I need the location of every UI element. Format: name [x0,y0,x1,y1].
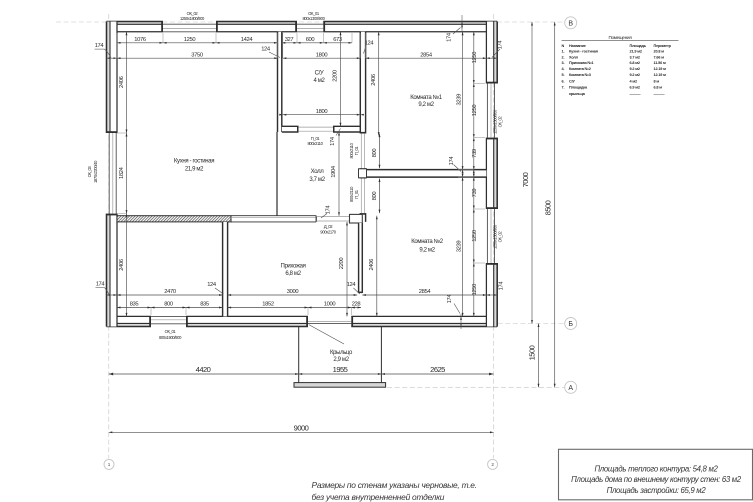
svg-text:4 м2: 4 м2 [630,79,638,83]
svg-text:739: 739 [472,189,478,198]
svg-text:1.: 1. [562,50,565,54]
svg-text:Площадь теплого контура: 54,8: Площадь теплого контура: 54,8 м2 [594,464,718,473]
svg-text:174: 174 [96,282,106,288]
svg-text:1250х1300/900: 1250х1300/900 [493,109,498,134]
svg-text:2406: 2406 [371,74,377,86]
svg-text:3239: 3239 [456,94,462,106]
svg-text:1250х1300/900: 1250х1300/900 [493,224,498,249]
svg-text:Периметр: Периметр [654,44,672,48]
svg-text:1000: 1000 [324,302,336,308]
svg-text:2470: 2470 [164,289,176,295]
svg-text:12.19 м: 12.19 м [654,73,667,77]
svg-text:1250: 1250 [472,284,478,296]
svg-text:1424: 1424 [241,37,254,43]
svg-text:9,2 м2: 9,2 м2 [419,247,435,253]
svg-text:174: 174 [499,281,505,291]
svg-text:1076: 1076 [134,37,146,43]
svg-text:228: 228 [352,302,361,308]
svg-text:2,9 м2: 2,9 м2 [333,357,349,363]
svg-text:3000: 3000 [287,289,299,295]
svg-text:1250х1800/900: 1250х1800/900 [180,16,205,21]
svg-text:С/У: С/У [569,79,575,83]
svg-text:Площадь: Площадь [630,44,647,48]
svg-text:1904: 1904 [331,165,337,178]
svg-text:1800: 1800 [316,109,328,115]
svg-text:6.9 м2: 6.9 м2 [630,86,640,90]
svg-text:2625: 2625 [430,365,445,374]
svg-text:7.66 м: 7.66 м [654,55,665,59]
svg-text:1: 1 [108,462,111,467]
svg-text:3.: 3. [562,61,565,65]
svg-text:2406: 2406 [119,259,125,271]
svg-text:9000: 9000 [294,424,309,433]
svg-text:11.56 м: 11.56 м [654,61,666,65]
svg-text:9,2 м2: 9,2 м2 [418,102,434,108]
svg-text:Площадь дома по внешнему конту: Площадь дома по внешнему контуру стен: 6… [571,475,742,484]
svg-text:2200: 2200 [339,258,345,270]
svg-text:20.8 м: 20.8 м [654,50,665,54]
svg-text:Площадь застройки: 65,9 м2: Площадь застройки: 65,9 м2 [607,486,707,495]
svg-text:ОК_02: ОК_02 [498,231,503,243]
svg-text:1852: 1852 [262,302,274,308]
svg-text:А: А [568,385,573,392]
svg-text:Комната №2: Комната №2 [411,238,443,245]
svg-text:П_01: П_01 [311,136,321,141]
svg-text:Размеры по стенам указаны черн: Размеры по стенам указаны черновые, т.е. [312,480,477,490]
svg-text:4 м2: 4 м2 [313,78,325,84]
svg-text:4.: 4. [562,67,565,71]
svg-text:Б: Б [568,321,573,328]
svg-text:21.9 м2: 21.9 м2 [630,50,642,54]
svg-text:2854: 2854 [420,52,433,58]
svg-text:Название: Название [569,44,586,48]
svg-text:900х2170: 900х2170 [320,229,336,234]
svg-text:174: 174 [449,156,455,166]
svg-text:124: 124 [261,47,271,53]
svg-text:ОК_03: ОК_03 [87,166,92,178]
svg-text:Комната №1: Комната №1 [410,94,442,101]
svg-text:800х2110: 800х2110 [349,186,354,202]
svg-text:7.: 7. [562,86,565,90]
svg-text:6,8 м2: 6,8 м2 [285,271,301,277]
svg-text:N: N [562,44,565,48]
svg-text:21,9 м2: 21,9 м2 [185,167,204,173]
svg-text:Комната №2: Комната №2 [569,67,591,71]
svg-text:5.: 5. [562,73,565,77]
svg-text:1800: 1800 [316,52,328,58]
svg-text:3239: 3239 [456,241,462,253]
svg-text:835: 835 [200,302,209,308]
svg-text:1824: 1824 [119,166,125,179]
svg-text:124: 124 [365,41,375,47]
svg-text:800: 800 [372,192,378,201]
svg-text:2: 2 [491,462,494,467]
svg-text:124: 124 [207,282,217,288]
svg-text:ОК_01: ОК_01 [165,329,177,334]
svg-text:Комната №3: Комната №3 [569,73,591,77]
svg-text:9.2 м2: 9.2 м2 [630,73,640,77]
svg-text:Площадка: Площадка [569,86,588,90]
svg-text:———: ——— [654,92,665,96]
svg-text:П_01: П_01 [354,146,359,156]
svg-text:600: 600 [306,37,315,43]
svg-text:Холл: Холл [311,169,325,175]
svg-text:1500: 1500 [527,345,536,360]
svg-text:800х2110: 800х2110 [349,142,354,158]
svg-text:6.8 м2: 6.8 м2 [630,61,640,65]
svg-text:174: 174 [326,205,332,215]
svg-text:3.7 м2: 3.7 м2 [630,55,640,59]
svg-text:2406: 2406 [369,259,375,271]
svg-text:835: 835 [130,302,139,308]
svg-text:12.19 м: 12.19 м [654,67,667,71]
svg-text:6.: 6. [562,79,565,83]
svg-text:800: 800 [372,149,378,158]
svg-text:1870х2200/40: 1870х2200/40 [93,160,98,183]
svg-text:Д_02: Д_02 [324,224,333,229]
svg-text:1250: 1250 [472,52,478,64]
svg-text:Кухня - гостиная: Кухня - гостиная [174,159,214,165]
svg-text:Холл: Холл [569,55,579,59]
svg-text:крыльца: крыльца [569,92,586,96]
svg-text:6.8 м: 6.8 м [654,86,663,90]
svg-text:174: 174 [447,32,453,42]
svg-text:1250: 1250 [184,37,196,43]
svg-text:без учета внутренненней отделк: без учета внутренненней отделки [312,492,445,502]
svg-text:739: 739 [472,149,478,158]
svg-text:Прихожая: Прихожая [280,264,305,270]
svg-text:С/У: С/У [315,71,324,77]
svg-text:800х1300/900: 800х1300/900 [302,16,325,21]
svg-text:1955: 1955 [333,365,348,374]
svg-text:327: 327 [285,37,294,43]
svg-text:4420: 4420 [196,365,211,374]
svg-text:124: 124 [347,282,357,288]
svg-text:1250: 1250 [472,230,478,242]
svg-text:8500: 8500 [544,200,553,215]
svg-text:Помещения: Помещения [608,35,632,40]
svg-text:Прихожая №1: Прихожая №1 [569,61,594,65]
svg-text:7000: 7000 [521,172,530,187]
svg-text:ОК_02: ОК_02 [498,116,503,128]
svg-text:174: 174 [95,43,105,49]
svg-text:8 м: 8 м [654,79,660,83]
svg-text:Крыльцо: Крыльцо [330,350,353,356]
svg-text:800х2110: 800х2110 [307,141,323,146]
svg-text:Кухня - гостиная: Кухня - гостиная [569,50,598,54]
svg-text:П_01: П_01 [354,189,359,199]
svg-text:9.2 м2: 9.2 м2 [630,67,640,71]
svg-text:3750: 3750 [191,52,203,58]
svg-text:1250: 1250 [472,105,478,117]
svg-text:174: 174 [498,40,504,50]
svg-text:174: 174 [447,294,453,304]
svg-text:800: 800 [164,302,173,308]
svg-text:2.: 2. [562,55,565,59]
svg-text:3,7 м2: 3,7 м2 [309,177,325,183]
svg-text:174: 174 [330,136,336,146]
svg-text:2200: 2200 [333,70,339,82]
svg-text:———: ——— [630,92,641,96]
svg-text:В: В [568,20,573,27]
svg-text:2406: 2406 [119,76,125,88]
svg-text:2854: 2854 [419,289,432,295]
svg-text:800х1900/900: 800х1900/900 [159,335,182,340]
